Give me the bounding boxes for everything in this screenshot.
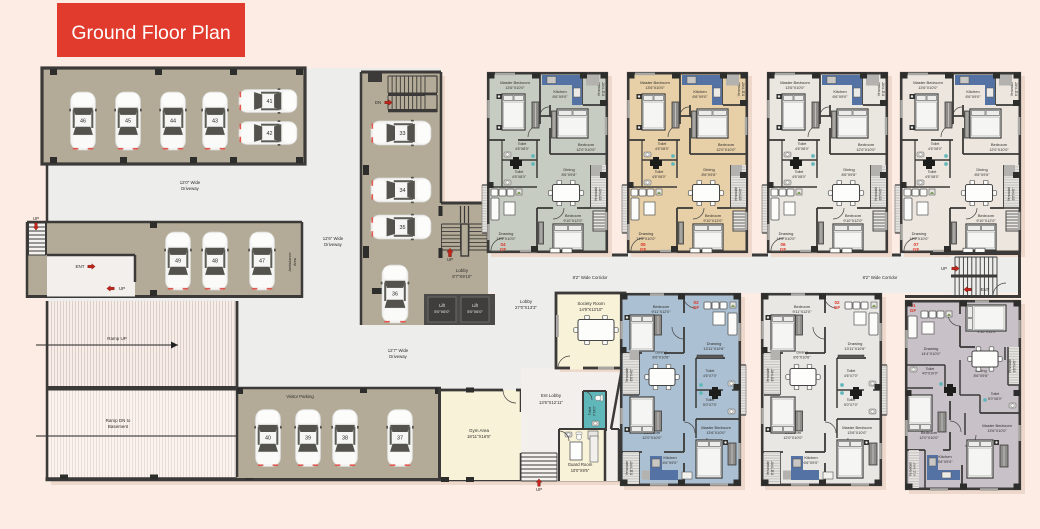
svg-text:Kitchen: Kitchen — [804, 455, 817, 460]
svg-text:6'6"X9'0": 6'6"X9'0" — [803, 461, 819, 465]
svg-text:4'6"X7'0": 4'6"X7'0" — [844, 374, 859, 378]
svg-text:12'7" Wide: 12'7" Wide — [388, 348, 409, 353]
svg-text:Ambulance: Ambulance — [288, 253, 292, 272]
svg-text:Toilet: Toilet — [655, 170, 664, 174]
svg-text:Toilet: Toilet — [798, 142, 807, 146]
svg-text:14'4"X10'0": 14'4"X10'0" — [921, 352, 941, 356]
svg-text:Toilet: Toilet — [991, 392, 1000, 396]
svg-text:4'6"X8'0": 4'6"X8'0" — [512, 175, 527, 179]
svg-text:Bedroom: Bedroom — [858, 142, 875, 147]
svg-text:5'0"X7'0": 5'0"X7'0" — [844, 403, 859, 407]
svg-text:Verandah: Verandah — [766, 461, 770, 476]
svg-text:Driveway: Driveway — [181, 186, 200, 191]
svg-text:8'6"X9'6": 8'6"X9'6" — [974, 173, 990, 177]
svg-text:6'11"X4'0": 6'11"X4'0" — [630, 461, 634, 475]
svg-text:44: 44 — [170, 119, 176, 125]
svg-text:13'6"X10'0": 13'6"X10'0" — [645, 86, 665, 90]
svg-text:12'0"X10'0": 12'0"X10'0" — [989, 148, 1009, 152]
svg-text:Dining: Dining — [843, 167, 854, 172]
svg-text:8'6"X4'0": 8'6"X4'0" — [630, 369, 634, 382]
svg-text:9'10"X12'0": 9'10"X12'0" — [563, 219, 583, 223]
svg-text:12'0"X10'0": 12'0"X10'0" — [856, 148, 876, 152]
svg-text:8'6"X4'0": 8'6"X4'0" — [771, 369, 775, 382]
svg-text:Dining: Dining — [703, 167, 714, 172]
svg-text:12'6" Wide: 12'6" Wide — [323, 236, 344, 241]
svg-text:12'0" Wide: 12'0" Wide — [180, 180, 201, 185]
svg-text:Master Bedroom: Master Bedroom — [913, 80, 943, 85]
svg-text:6'11"X4'6": 6'11"X4'6" — [602, 82, 606, 96]
svg-text:Toilet: Toilet — [518, 142, 527, 146]
svg-text:13'6"X10'0": 13'6"X10'0" — [785, 86, 805, 90]
svg-text:4'0"X10'0": 4'0"X10'0" — [922, 372, 939, 376]
svg-text:Master Bedroom: Master Bedroom — [780, 80, 810, 85]
svg-text:Lobby: Lobby — [520, 299, 533, 304]
svg-text:Society Room: Society Room — [577, 301, 605, 306]
svg-text:13'11"X10'6": 13'11"X10'6" — [844, 347, 866, 351]
svg-text:Master Bedroom: Master Bedroom — [640, 80, 670, 85]
svg-text:8'6"X10'6": 8'6"X10'6" — [793, 356, 811, 360]
svg-text:40: 40 — [265, 436, 271, 442]
svg-text:Gym Area: Gym Area — [469, 428, 490, 433]
svg-text:GF: GF — [780, 247, 787, 252]
svg-text:8'7"X9'10": 8'7"X9'10" — [452, 274, 472, 279]
svg-text:UP: UP — [119, 286, 125, 291]
svg-text:12'0"X10'0": 12'0"X10'0" — [716, 148, 736, 152]
svg-text:6'6"X9'0": 6'6"X9'0" — [662, 461, 678, 465]
svg-text:8'6"X4'0": 8'6"X4'0" — [599, 188, 603, 201]
svg-text:Toilet: Toilet — [588, 407, 592, 415]
svg-text:Ramp DN to: Ramp DN to — [106, 418, 131, 423]
svg-text:Dining: Dining — [976, 167, 987, 172]
svg-text:Drawing: Drawing — [707, 341, 722, 346]
svg-text:49: 49 — [175, 259, 181, 265]
svg-text:8'2" Wide Corridor: 8'2" Wide Corridor — [573, 275, 608, 280]
svg-text:45: 45 — [125, 119, 131, 125]
svg-text:6'6"X9'0": 6'6"X9'0" — [552, 95, 568, 99]
svg-text:Bedroom: Bedroom — [578, 142, 595, 147]
svg-text:Toilet: Toilet — [515, 170, 524, 174]
svg-text:14'9"X13'10": 14'9"X13'10" — [579, 307, 603, 312]
svg-text:Dining: Dining — [796, 350, 807, 355]
svg-text:Ground Floor Plan: Ground Floor Plan — [71, 22, 230, 44]
svg-text:4'6"X8'0": 4'6"X8'0" — [795, 147, 810, 151]
svg-text:Verandah: Verandah — [734, 187, 738, 202]
svg-text:Verandah: Verandah — [874, 187, 878, 202]
svg-text:6'11"X4'6": 6'11"X4'6" — [1015, 82, 1019, 96]
svg-text:Drawing: Drawing — [779, 231, 794, 236]
svg-text:Guard Room: Guard Room — [568, 462, 593, 467]
svg-text:13'6"X10'0": 13'6"X10'0" — [987, 429, 1007, 433]
svg-text:47: 47 — [259, 259, 265, 265]
svg-text:4'6"X7'0": 4'6"X7'0" — [703, 374, 718, 378]
svg-text:Kitchen: Kitchen — [693, 89, 706, 94]
svg-text:Dining: Dining — [655, 350, 666, 355]
svg-text:13'6"X10'0": 13'6"X10'0" — [847, 431, 867, 435]
svg-text:Toilet: Toilet — [706, 369, 715, 373]
svg-text:37: 37 — [397, 436, 403, 442]
svg-text:34: 34 — [400, 188, 406, 194]
svg-text:4'6"X8'0": 4'6"X8'0" — [655, 147, 670, 151]
svg-text:Kitchen: Kitchen — [833, 89, 846, 94]
svg-text:4'6"X8'0": 4'6"X8'0" — [652, 175, 667, 179]
svg-text:Verandah: Verandah — [1007, 187, 1011, 202]
svg-text:UP: UP — [941, 266, 947, 271]
svg-text:Bedroom: Bedroom — [978, 213, 995, 218]
svg-text:6'6"X9'0": 6'6"X9'0" — [832, 95, 848, 99]
svg-text:5'0"X8'0": 5'0"X8'0" — [988, 397, 1003, 401]
svg-text:36: 36 — [392, 292, 398, 298]
svg-text:8'6"X9'6": 8'6"X9'6" — [973, 374, 989, 378]
svg-text:43: 43 — [212, 119, 218, 125]
svg-text:Toilet: Toilet — [847, 369, 856, 373]
svg-text:13'6"X10'0": 13'6"X10'0" — [918, 86, 938, 90]
svg-text:9'10"X12'0": 9'10"X12'0" — [976, 219, 996, 223]
svg-text:9'10"X12'0": 9'10"X12'0" — [703, 219, 723, 223]
svg-text:4'6"X8'0": 4'6"X8'0" — [925, 175, 940, 179]
svg-text:Dining: Dining — [563, 167, 574, 172]
svg-text:GF: GF — [913, 247, 920, 252]
svg-text:GF: GF — [910, 308, 917, 313]
svg-text:Drawing: Drawing — [848, 341, 863, 346]
svg-text:Toilet: Toilet — [795, 170, 804, 174]
svg-text:42: 42 — [267, 131, 273, 137]
svg-text:GF: GF — [693, 305, 700, 310]
svg-text:Bedroom: Bedroom — [705, 213, 722, 218]
svg-text:13'6"X12'11": 13'6"X12'11" — [539, 400, 563, 405]
svg-text:Driveway: Driveway — [389, 354, 408, 359]
svg-text:5'0"X7'0": 5'0"X7'0" — [703, 403, 718, 407]
svg-text:Ramp UP: Ramp UP — [107, 336, 127, 341]
svg-text:ENT: ENT — [76, 264, 85, 269]
svg-text:33: 33 — [400, 131, 406, 137]
svg-text:Kitchen: Kitchen — [663, 455, 676, 460]
svg-text:Kitchen: Kitchen — [966, 89, 979, 94]
svg-text:8'2" Wide Corridor: 8'2" Wide Corridor — [863, 275, 898, 280]
svg-text:6'11"X4'0": 6'11"X4'0" — [771, 461, 775, 475]
svg-text:8'6"X4'0": 8'6"X4'0" — [1012, 188, 1016, 201]
svg-text:9'11"X12'0": 9'11"X12'0" — [792, 310, 812, 314]
svg-text:8'6"X4'0": 8'6"X4'0" — [1013, 360, 1017, 373]
svg-text:Lobby: Lobby — [456, 268, 469, 273]
svg-text:38: 38 — [342, 436, 348, 442]
svg-text:Area: Area — [293, 257, 297, 266]
svg-text:5'0"X6'0": 5'0"X6'0" — [434, 309, 450, 314]
svg-text:Master Bedroom: Master Bedroom — [982, 423, 1012, 428]
svg-text:Toilet: Toilet — [658, 142, 667, 146]
svg-text:Toilet: Toilet — [928, 170, 937, 174]
svg-text:4'6"X8'0": 4'6"X8'0" — [792, 175, 807, 179]
svg-text:46: 46 — [80, 119, 86, 125]
svg-text:Verandah: Verandah — [766, 368, 770, 383]
svg-text:12'0"X10'0": 12'0"X10'0" — [576, 148, 596, 152]
svg-text:Drawing: Drawing — [499, 231, 514, 236]
svg-text:5'0"X6'0": 5'0"X6'0" — [467, 309, 483, 314]
svg-text:9'11"X12'0": 9'11"X12'0" — [651, 310, 671, 314]
svg-text:13'6"X10'0": 13'6"X10'0" — [505, 86, 525, 90]
svg-text:12'0"X10'0": 12'0"X10'0" — [919, 436, 939, 440]
svg-text:6'6"X9'0": 6'6"X9'0" — [937, 460, 953, 464]
svg-text:7'X4'0": 7'X4'0" — [593, 405, 597, 416]
svg-text:8'6"X4'0": 8'6"X4'0" — [739, 188, 743, 201]
svg-text:13'6"X10'0": 13'6"X10'0" — [706, 431, 726, 435]
svg-text:GF: GF — [500, 247, 507, 252]
svg-text:Drawing: Drawing — [639, 231, 654, 236]
svg-text:4'6"X8'0": 4'6"X8'0" — [928, 147, 943, 151]
svg-text:Visitor Parking: Visitor Parking — [286, 394, 314, 399]
svg-text:12'0"X10'0": 12'0"X10'0" — [642, 436, 662, 440]
svg-text:48: 48 — [212, 259, 218, 265]
svg-text:Bedroom: Bedroom — [794, 304, 811, 309]
svg-text:6'11"X4'6": 6'11"X4'6" — [882, 82, 886, 96]
svg-text:Master Bedroom: Master Bedroom — [500, 80, 530, 85]
svg-text:Toilet: Toilet — [926, 367, 935, 371]
svg-text:GF: GF — [834, 305, 841, 310]
svg-text:Verandah: Verandah — [594, 187, 598, 202]
svg-text:Bedroom: Bedroom — [565, 213, 582, 218]
svg-text:10'0"X9'5": 10'0"X9'5" — [571, 468, 590, 473]
svg-text:Bedroom: Bedroom — [991, 142, 1008, 147]
svg-text:8'6"X9'6": 8'6"X9'6" — [561, 173, 577, 177]
svg-text:6'11"X4'6": 6'11"X4'6" — [742, 82, 746, 96]
svg-text:6'11"X4'0": 6'11"X4'0" — [913, 462, 917, 476]
svg-text:Drawing: Drawing — [924, 346, 939, 351]
svg-text:13'11"X10'6": 13'11"X10'6" — [703, 347, 725, 351]
svg-text:ENT: ENT — [981, 287, 990, 292]
svg-text:Basement: Basement — [108, 424, 129, 429]
svg-text:GF: GF — [640, 247, 647, 252]
svg-text:6'6"X9'0": 6'6"X9'0" — [965, 95, 981, 99]
svg-text:Kitchen: Kitchen — [938, 454, 951, 459]
svg-text:Lift: Lift — [439, 303, 445, 308]
svg-text:18'11"X16'5": 18'11"X16'5" — [467, 434, 491, 439]
svg-text:Toilet: Toilet — [931, 142, 940, 146]
svg-text:Bedroom: Bedroom — [653, 304, 670, 309]
svg-text:12'0"X10'0": 12'0"X10'0" — [783, 436, 803, 440]
svg-text:8'6"X9'6": 8'6"X9'6" — [701, 173, 717, 177]
svg-text:Master Bedroom: Master Bedroom — [701, 425, 731, 430]
svg-text:Bedroom: Bedroom — [718, 142, 735, 147]
svg-text:Drawing: Drawing — [912, 231, 927, 236]
svg-text:Master Bedroom: Master Bedroom — [842, 425, 872, 430]
svg-text:6'6"X9'0": 6'6"X9'0" — [692, 95, 708, 99]
svg-text:Verandah: Verandah — [625, 461, 629, 476]
svg-text:Lift: Lift — [472, 303, 478, 308]
svg-text:8'6"X9'6": 8'6"X9'6" — [841, 173, 857, 177]
svg-text:4'6"X8'0": 4'6"X8'0" — [515, 147, 530, 151]
svg-text:UP: UP — [536, 487, 542, 492]
svg-text:Bedroom: Bedroom — [845, 213, 862, 218]
svg-text:UP: UP — [447, 257, 453, 262]
svg-text:41: 41 — [267, 99, 273, 105]
svg-text:9'10"X12'0": 9'10"X12'0" — [843, 219, 863, 223]
svg-text:39: 39 — [305, 436, 311, 442]
svg-text:Ent Lobby: Ent Lobby — [541, 393, 562, 398]
svg-text:Verandah: Verandah — [625, 368, 629, 383]
svg-text:35: 35 — [400, 225, 406, 231]
svg-text:Driveway: Driveway — [324, 242, 343, 247]
svg-text:DN: DN — [375, 100, 381, 105]
svg-text:8'6"X4'0": 8'6"X4'0" — [879, 188, 883, 201]
svg-text:Kitchen: Kitchen — [553, 89, 566, 94]
svg-text:27'0"X13'3": 27'0"X13'3" — [515, 305, 537, 310]
svg-text:8'6"X10'6": 8'6"X10'6" — [652, 356, 670, 360]
svg-text:UP: UP — [33, 216, 39, 221]
